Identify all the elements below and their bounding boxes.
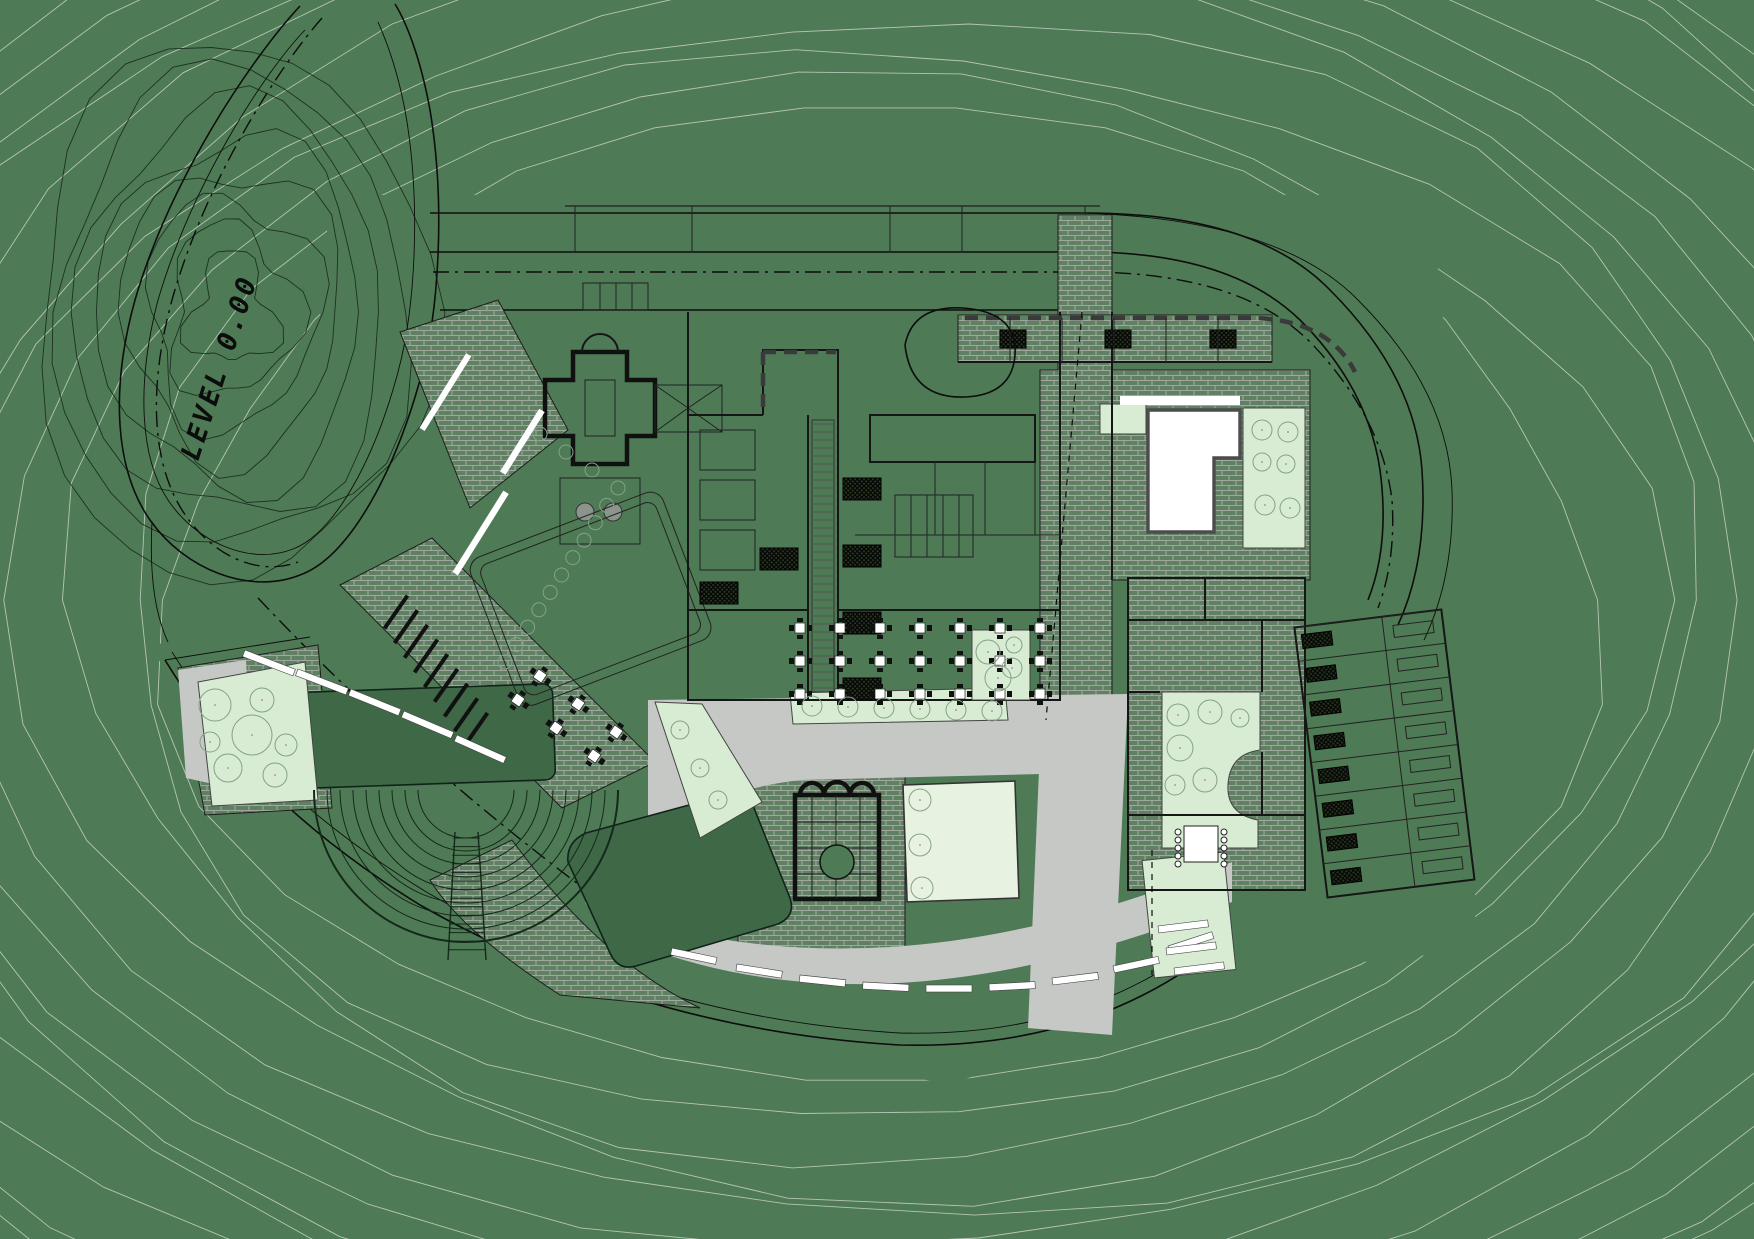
chair [887,658,892,664]
tree-center [1264,504,1266,506]
chair [917,684,923,688]
chair [957,651,963,655]
chair [997,618,1003,622]
chair [869,625,874,631]
chair [877,651,883,655]
chair [997,684,1003,688]
bathroom-unit [1301,631,1332,649]
table-top [1035,623,1045,633]
tree-center [1174,784,1176,786]
chair [829,691,834,697]
tree-center [1285,463,1287,465]
chair [829,625,834,631]
chair [917,668,923,672]
chair [1221,837,1227,843]
stair-core [760,548,798,570]
chair [1029,625,1034,631]
chair [837,635,843,639]
chair [797,651,803,655]
tree-center [717,799,719,801]
tree-center [921,887,923,889]
tree-center [847,706,849,708]
chair [1037,684,1043,688]
chair [917,618,923,622]
chair [837,618,843,622]
chair [909,658,914,664]
tree-center [919,708,921,710]
table-top [995,623,1005,633]
chair [967,658,972,664]
bathroom-unit [1310,699,1341,717]
chair [847,658,852,664]
chair [949,691,954,697]
tree-center [955,709,957,711]
chair [927,625,932,631]
chair [997,635,1003,639]
chair [869,691,874,697]
tree-center [1289,507,1291,509]
chair [1175,853,1181,859]
tree-center [919,844,921,846]
table-top [1035,689,1045,699]
tree-center [261,699,263,701]
table-top [915,656,925,666]
site-plan-drawing: LEVEL 0.00 [0,0,1754,1239]
chair [989,691,994,697]
chair [1029,691,1034,697]
stair-core [700,582,738,604]
chair [967,625,972,631]
chair [1221,853,1227,859]
site-plan-canvas: LEVEL 0.00 [0,0,1754,1239]
stair-core [843,478,881,500]
tree-center [1261,461,1263,463]
chair [837,684,843,688]
tree-center [274,774,276,776]
bathroom-unit [1322,800,1353,818]
chair [917,635,923,639]
table-top [875,623,885,633]
table-top [835,656,845,666]
chair [909,691,914,697]
chair [847,625,852,631]
chair [957,684,963,688]
tree-center [883,707,885,709]
chair [837,651,843,655]
chair [1037,701,1043,705]
bench-strip [926,985,972,992]
chair [869,658,874,664]
chair [967,691,972,697]
chair [1037,651,1043,655]
chair [957,668,963,672]
table-top [955,689,965,699]
table-top [835,623,845,633]
chair [797,618,803,622]
chair [1175,845,1181,851]
bathroom-unit [1318,766,1349,784]
table-top [1035,656,1045,666]
chair [829,658,834,664]
tree-center [1179,747,1181,749]
chair [877,668,883,672]
tree-center [987,651,989,653]
chair [877,618,883,622]
tree-center [997,677,999,679]
chair [927,658,932,664]
chair [949,658,954,664]
chair [1037,618,1043,622]
tree-center [209,741,211,743]
table-top [955,623,965,633]
table-top [955,656,965,666]
chair [877,684,883,688]
chair [1037,635,1043,639]
chair [1175,829,1181,835]
chair [847,691,852,697]
chair [789,691,794,697]
bathroom-unit [1330,867,1361,885]
tree-center [919,799,921,801]
chair [1047,658,1052,664]
chair [927,691,932,697]
chair [877,701,883,705]
chair [797,684,803,688]
table-top [915,623,925,633]
tree-center [991,710,993,712]
chair [1175,837,1181,843]
tree-center [1011,667,1013,669]
chair [957,618,963,622]
tree-center [214,704,216,706]
chair [1007,625,1012,631]
tree-center [251,734,253,736]
chair [807,625,812,631]
table-top [915,689,925,699]
chair [1047,625,1052,631]
chair [837,668,843,672]
chair [917,651,923,655]
chair [1221,861,1227,867]
chair [807,658,812,664]
chair [1047,691,1052,697]
bathroom-unit [1306,665,1337,683]
chair [887,625,892,631]
pale-court-panel [903,781,1019,902]
stair-core [1105,330,1131,348]
tree-center [227,767,229,769]
tree-center [811,705,813,707]
chair [989,625,994,631]
chair [957,635,963,639]
chair [1221,829,1227,835]
chair [1175,861,1181,867]
tree-center [1239,717,1241,719]
tree-center [1261,429,1263,431]
tree-center [1287,431,1289,433]
table-top [875,656,885,666]
bathroom-unit [1314,732,1345,750]
table-top [835,689,845,699]
chair [797,668,803,672]
chair [909,625,914,631]
chair [1037,668,1043,672]
chair [1029,658,1034,664]
tree-center [1013,644,1015,646]
tree-center [1209,711,1211,713]
tree-center [699,767,701,769]
chair [949,625,954,631]
table-top [795,689,805,699]
tree-center [1204,779,1206,781]
bathroom-unit [1326,834,1357,852]
chair [789,625,794,631]
table-top [795,656,805,666]
chair [1221,845,1227,851]
chair [887,691,892,697]
table-top [875,689,885,699]
tree-center [285,744,287,746]
chair [789,658,794,664]
stair-core [843,545,881,567]
table-top [795,623,805,633]
chair [917,701,923,705]
tree-center [679,729,681,731]
chair [1007,691,1012,697]
chair [797,635,803,639]
stair-core [1210,330,1236,348]
tree-center [1177,714,1179,716]
chair [877,635,883,639]
